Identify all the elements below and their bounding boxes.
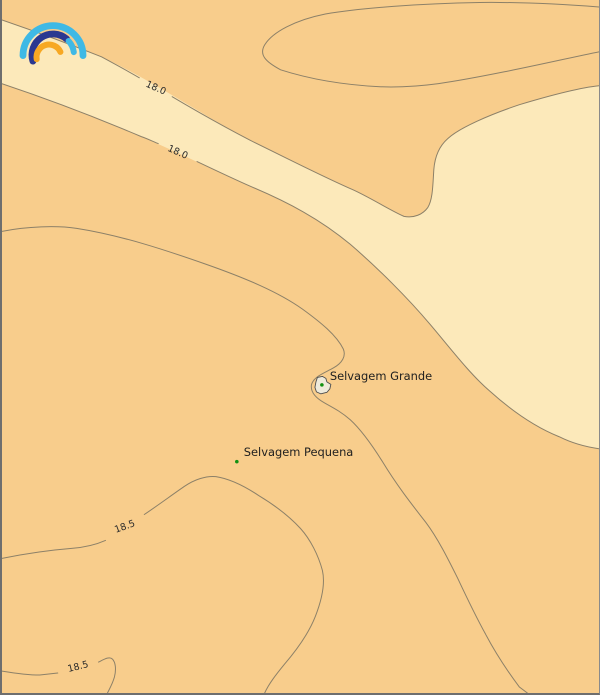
contour-map-svg: 18.0 18.0 18.5 18.5 Selvagem Grande Selv… [2, 0, 599, 693]
meteoblue-logo [8, 4, 98, 72]
selvagem-pequena-label: Selvagem Pequena [244, 445, 354, 459]
selvagem-pequena-marker [235, 460, 239, 464]
map-canvas[interactable]: 18.0 18.0 18.5 18.5 Selvagem Grande Selv… [0, 0, 600, 695]
logo-middle-right-arc [69, 41, 74, 52]
selvagem-grande-label: Selvagem Grande [330, 369, 432, 383]
logo-inner-arc [37, 45, 61, 60]
selvagem-grande-marker [320, 383, 324, 387]
